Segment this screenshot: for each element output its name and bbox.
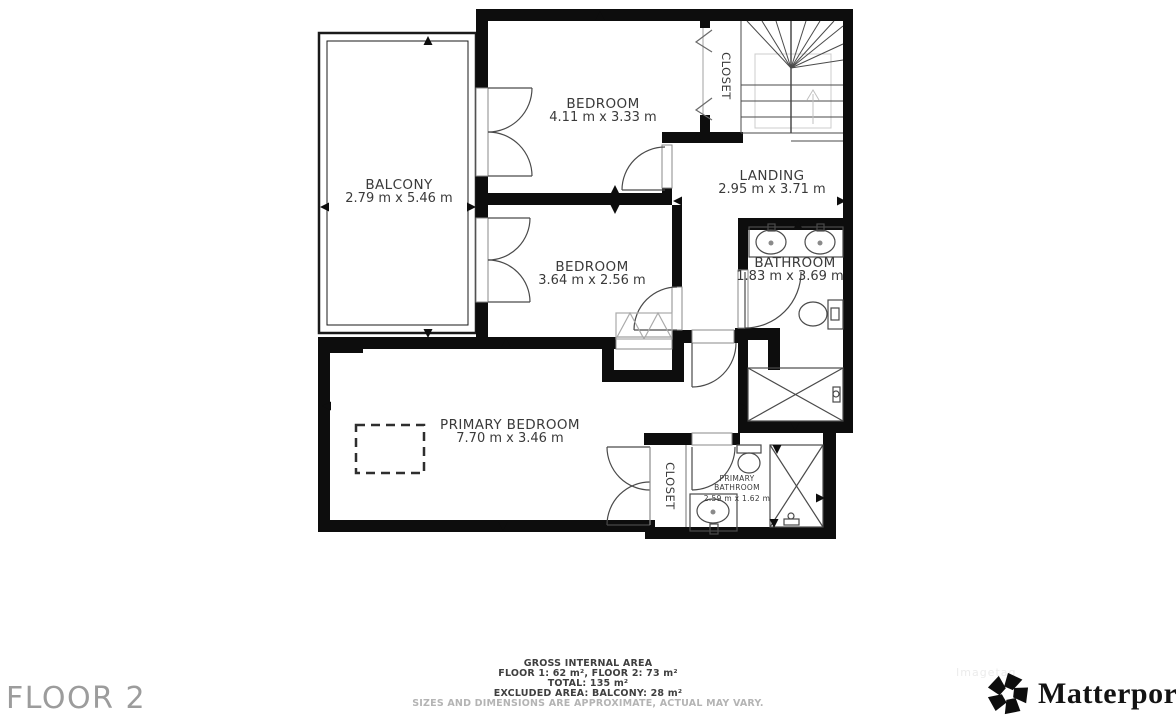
matterport-pinwheel-icon	[985, 671, 1031, 717]
french-door-bedroom2	[488, 218, 530, 302]
primary-bathroom-label-1: PRIMARY	[720, 474, 755, 483]
door-bedroom2	[634, 287, 677, 330]
floor-plan-page: BALCONY 2.79 m x 5.46 m BEDROOM 4.11 m x…	[0, 0, 1176, 720]
primary-bathroom-label-2: BATHROOM	[714, 483, 760, 492]
floor-plan-canvas: BALCONY 2.79 m x 5.46 m BEDROOM 4.11 m x…	[0, 0, 1176, 720]
room-labels: BALCONY 2.79 m x 5.46 m BEDROOM 4.11 m x…	[345, 52, 843, 510]
french-door-bedroom1	[488, 88, 532, 176]
bedroom2-dims: 3.64 m x 2.56 m	[538, 273, 645, 288]
brand-name: Matterport	[1038, 677, 1176, 710]
bifold-doors-bedroom2-closet	[616, 313, 672, 339]
door-bedroom1	[622, 147, 665, 190]
closet-door-chevrons	[696, 28, 712, 120]
bedroom1-dims: 4.11 m x 3.33 m	[549, 110, 656, 125]
closet-upper-label: CLOSET	[719, 52, 733, 100]
primary-shower	[770, 445, 823, 527]
closet-primary-label: CLOSET	[663, 462, 677, 510]
balcony-dims: 2.79 m x 5.46 m	[345, 191, 452, 206]
area-summary: GROSS INTERNAL AREA FLOOR 1: 62 m², FLOO…	[358, 659, 818, 709]
staircase	[741, 21, 843, 141]
primary-bedroom-dims: 7.70 m x 3.46 m	[456, 431, 563, 446]
bathroom-toilet	[799, 300, 843, 329]
primary-bathroom-dims: 2.59 m x 1.62 m	[704, 494, 771, 503]
matterport-wordmark: Matterport™	[1038, 677, 1176, 711]
bathroom-dims: 1.83 m x 3.69 m	[736, 269, 843, 284]
area-summary-disclaimer: SIZES AND DIMENSIONS ARE APPROXIMATE, AC…	[358, 699, 818, 709]
bathroom-shower	[748, 368, 843, 421]
floor-label: FLOOR 2	[6, 681, 146, 716]
matterport-logo: Matterport™	[985, 671, 1176, 717]
door-hallway	[692, 343, 736, 387]
landing-dims: 2.95 m x 3.71 m	[718, 182, 825, 197]
primary-bathroom-toilet	[737, 445, 761, 473]
primary-bedroom-dashed-void	[356, 425, 424, 473]
